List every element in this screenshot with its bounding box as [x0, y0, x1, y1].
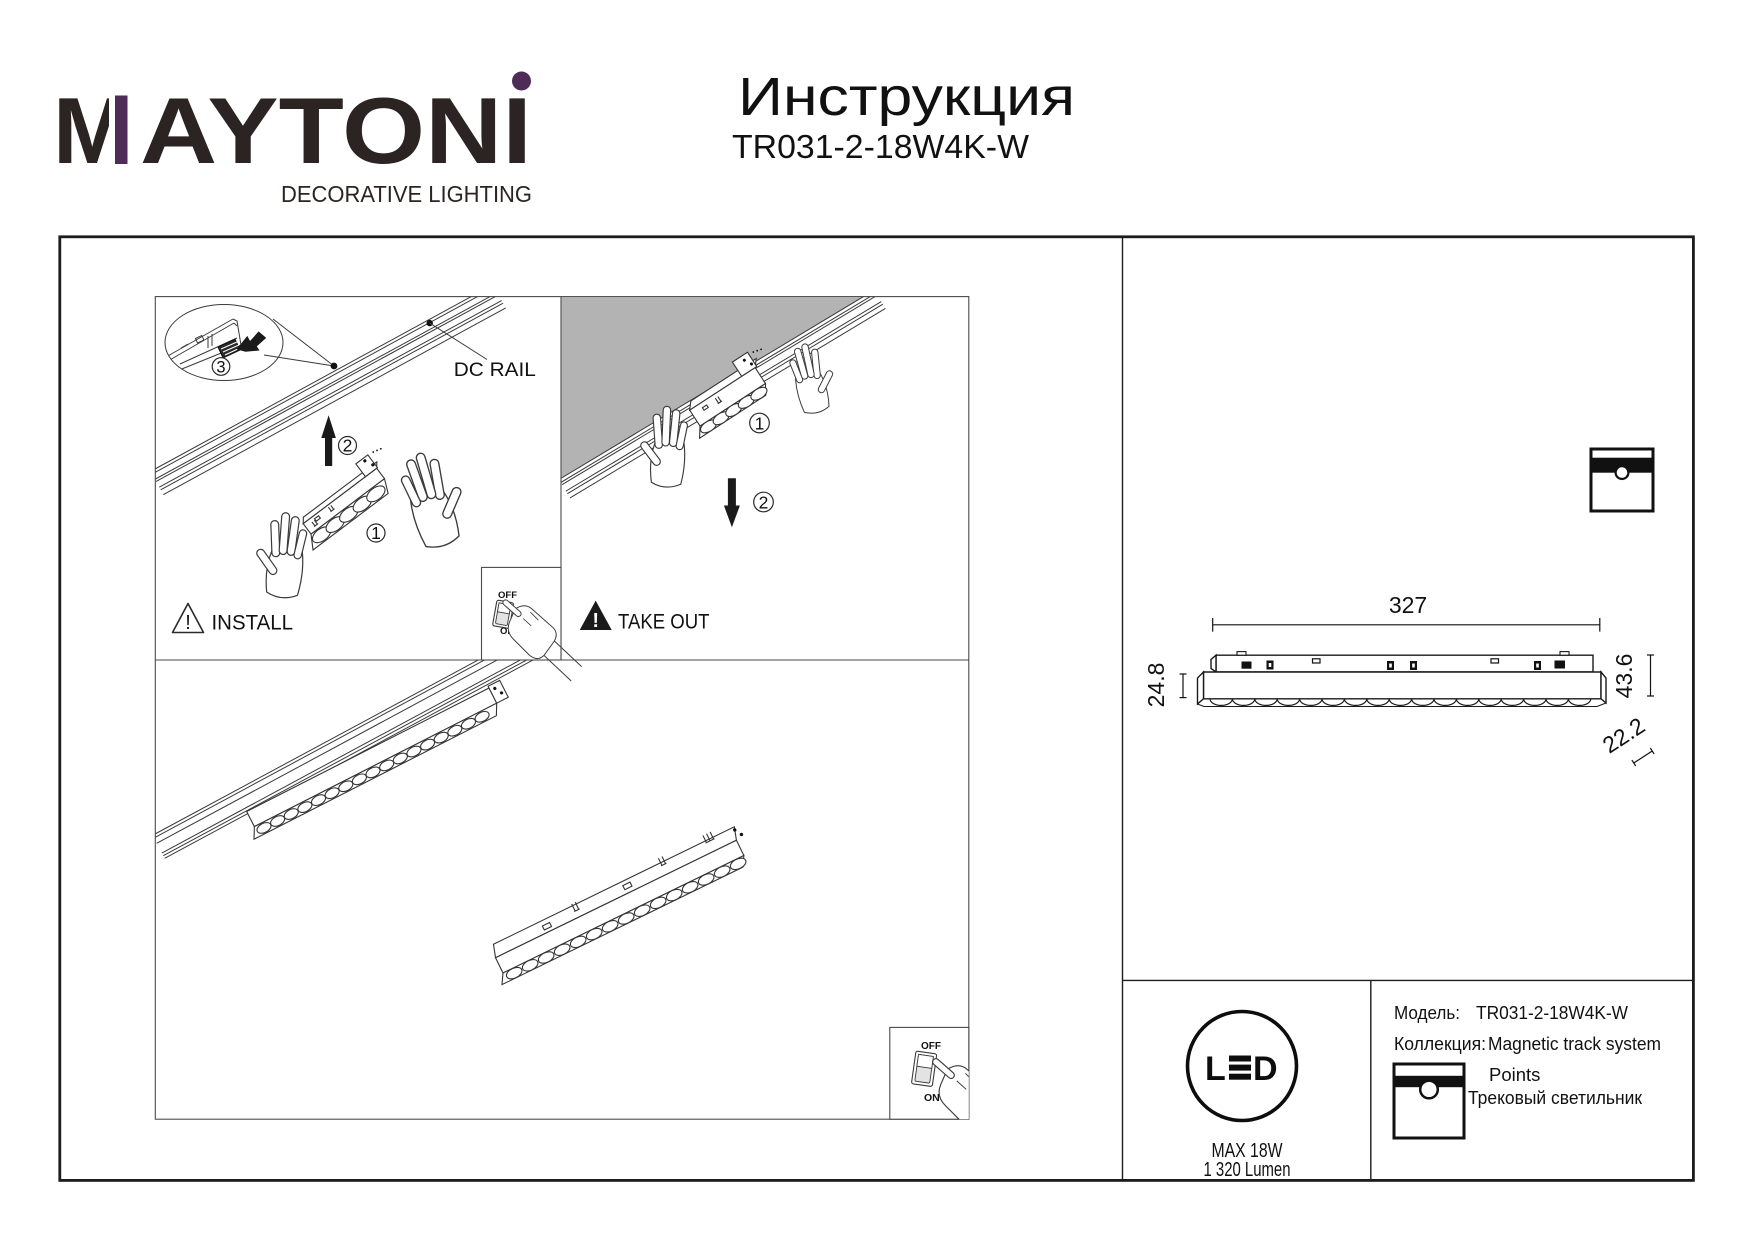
svg-text:Коллекция:: Коллекция: — [1394, 1033, 1486, 1054]
svg-text:Points: Points — [1489, 1064, 1540, 1085]
svg-text:L: L — [1205, 1050, 1226, 1088]
svg-text:OFF: OFF — [498, 590, 517, 601]
svg-text:2: 2 — [343, 436, 353, 456]
svg-text:OFF: OFF — [921, 1041, 941, 1052]
svg-text:43.6: 43.6 — [1611, 654, 1637, 699]
svg-text:3: 3 — [216, 359, 225, 377]
svg-text:1 320 Lumen: 1 320 Lumen — [1204, 1159, 1291, 1181]
svg-text:INSTALL: INSTALL — [212, 612, 294, 635]
svg-text:Трековый светильник: Трековый светильник — [1468, 1087, 1643, 1108]
svg-text:1: 1 — [755, 413, 765, 433]
svg-text:DC RAIL: DC RAIL — [454, 359, 536, 381]
svg-text:!: ! — [185, 612, 191, 634]
svg-text:1: 1 — [371, 523, 381, 543]
svg-text:TR031-2-18W4K-W: TR031-2-18W4K-W — [732, 128, 1030, 165]
svg-text:327: 327 — [1389, 592, 1427, 618]
svg-text:!: ! — [592, 610, 599, 632]
svg-text:24.8: 24.8 — [1143, 663, 1169, 708]
svg-text:Magnetic track system: Magnetic track system — [1488, 1033, 1661, 1054]
svg-text:ON: ON — [924, 1092, 940, 1104]
svg-text:2: 2 — [759, 492, 769, 512]
svg-text:D: D — [1253, 1050, 1278, 1088]
svg-text:AYTONI: AYTONI — [140, 78, 532, 183]
svg-text:TR031-2-18W4K-W: TR031-2-18W4K-W — [1476, 1002, 1628, 1023]
svg-text:TAKE OUT: TAKE OUT — [618, 610, 710, 633]
svg-text:DECORATIVE LIGHTING: DECORATIVE LIGHTING — [281, 181, 532, 207]
svg-text:Инструкция: Инструкция — [738, 67, 1075, 127]
svg-text:Модель:: Модель: — [1394, 1002, 1460, 1023]
